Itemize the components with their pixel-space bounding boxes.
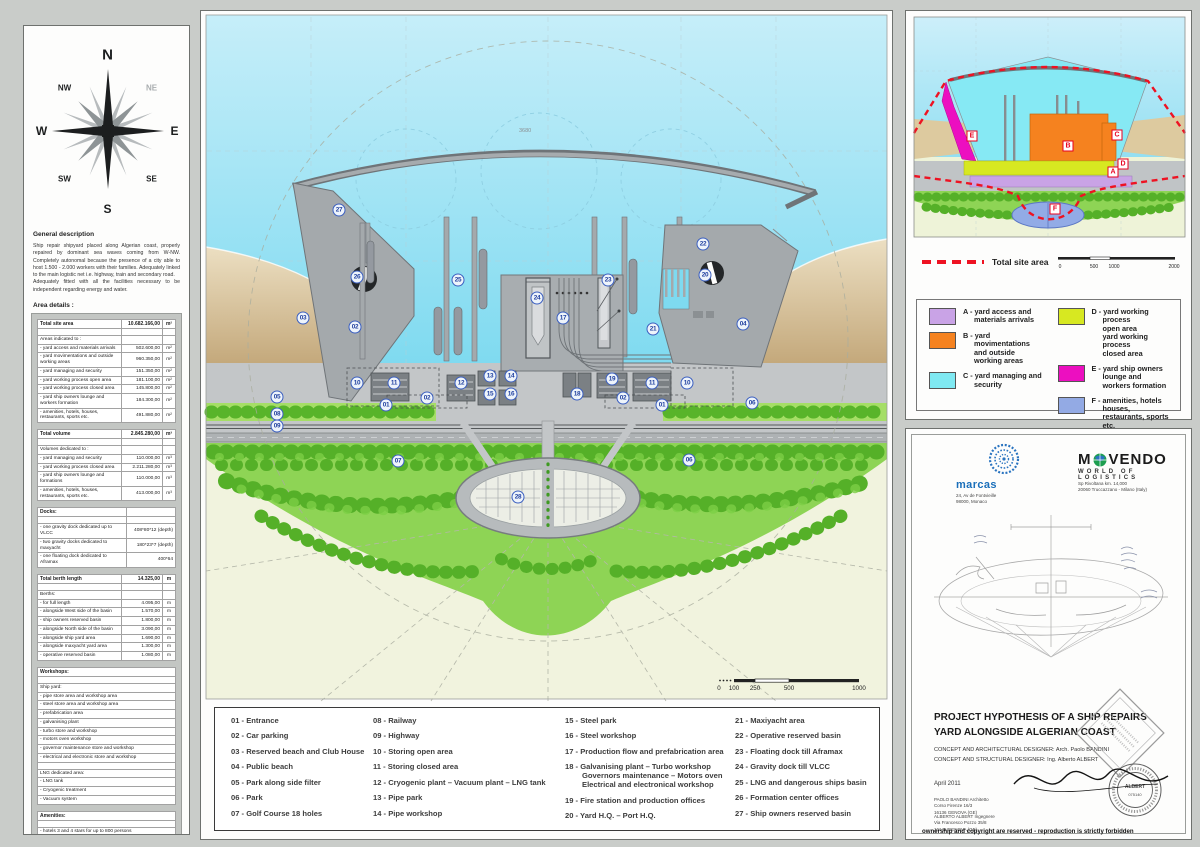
table-row: - alongside maxyacht yard area1.300,00m [38, 643, 176, 652]
table-row: - galvanising plant [38, 718, 176, 727]
legend-item: 08 - Railway [373, 717, 569, 726]
workshops-table: Workshops: Ship yard: - pipe store area … [37, 667, 176, 805]
compass-label-w: W [36, 124, 47, 138]
map-marker: 06 [683, 454, 696, 467]
table-intro: Areas indicated to : [38, 335, 122, 344]
table-row: - alongside ship yard area1.690,00m [38, 634, 176, 643]
table-row: - amenities, hotels, houses, restaurants… [38, 486, 176, 501]
table-row: - yard working process open area181.100,… [38, 376, 176, 385]
legend-item: 03 - Reserved beach and Club House [231, 748, 371, 757]
map-marker: 15 [484, 388, 497, 401]
map-marker: 01 [380, 399, 393, 412]
table-title: Total berth length [38, 574, 122, 583]
legend-item: 12 - Cryogenic plant – Vacuum plant – LN… [373, 779, 569, 788]
map-marker: 25 [452, 274, 465, 287]
legend-item: 27 - Ship owners reserved basin [735, 810, 877, 819]
zone-legend-item: D - yard working process open area yard … [1058, 308, 1175, 358]
map-marker: 16 [505, 388, 518, 401]
plan-legend: 01 - Entrance02 - Car parking03 - Reserv… [214, 707, 880, 831]
map-marker: 02 [421, 392, 434, 405]
table-unit: m³ [163, 430, 176, 439]
legend-item: 05 - Park along side filter [231, 779, 371, 788]
total-site-area-label: Total site area [992, 257, 1049, 267]
zone-b-shape [1030, 114, 1108, 161]
map-marker: 01 [656, 399, 669, 412]
general-description-text: Ship repair shipyard placed along Algeri… [33, 243, 180, 294]
table-total-value: 14.325,00 [122, 574, 163, 583]
zone-badge: C [1112, 130, 1123, 141]
general-description-title: General description [33, 231, 182, 238]
table-title: Total site area [38, 319, 122, 328]
map-marker: 23 [602, 274, 615, 287]
concept-sketch [916, 497, 1186, 667]
table-row: - yard movimentations and outside workin… [38, 353, 176, 368]
map-marker: 22 [697, 238, 710, 251]
signature [1006, 754, 1176, 800]
table-row: - alongside North side of the basin3.090… [38, 625, 176, 634]
compass-label-nw: NW [58, 84, 71, 93]
map-marker: 19 [606, 373, 619, 386]
zoning-overview-panel: ABCDEF Total site area 050010002000 [905, 10, 1192, 420]
legend-item: 01 - Entrance [231, 717, 371, 726]
table-row: - LNG tank [38, 778, 176, 787]
area-details-tables: Total site area10.682.166,00m² Areas ind… [31, 313, 182, 835]
movendo-subtitle: WORLD OF LOGISTICS [1078, 469, 1191, 481]
berths-table: Total berth length14.325,00m Berths: - f… [37, 574, 176, 661]
site-area-table: Total site area10.682.166,00m² Areas ind… [37, 319, 176, 423]
table-row: - prefabrication area [38, 710, 176, 719]
map-marker: 27 [333, 204, 346, 217]
table-row: - governor maintenance store and worksho… [38, 745, 176, 754]
legend-item: 16 - Steel workshop [565, 732, 737, 741]
zone-legend-item: E - yard ship owners lounge and workers … [1058, 365, 1175, 390]
docks-table: Docks: - one gravity dock dedicated up t… [37, 507, 176, 568]
table-row: - alongside West side of the basin1.570,… [38, 608, 176, 617]
table-total-value: 10.682.166,00 [122, 319, 163, 328]
map-marker: 11 [388, 377, 401, 390]
zone-legend-item: C - yard managing and security [929, 372, 1046, 389]
legend-item: 24 - Gravity dock till VLCC [735, 763, 877, 772]
movendo-globe-icon [1093, 453, 1107, 467]
zone-label: B - yard movimentations and outside work… [963, 332, 1046, 365]
zone-label: C - yard managing and security [963, 372, 1042, 389]
legend-item: 06 - Park [231, 794, 371, 803]
table-row: - hotels 3 and 4 stars for up to 800 per… [38, 827, 176, 835]
legend-item: 17 - Production flow and prefabrication … [565, 748, 737, 757]
zone-color-swatch [929, 308, 956, 325]
table-row: - one floating dock dedicated to Aframax… [38, 553, 176, 568]
table-row: - yard working process closed area2.211.… [38, 463, 176, 472]
table-row: - amenities, hotels, houses, restaurants… [38, 408, 176, 423]
scale-tick: 1000 [1108, 264, 1119, 270]
legend-item: 11 - Storing closed area [373, 763, 569, 772]
map-marker: 10 [351, 377, 364, 390]
compass-label-sw: SW [58, 175, 71, 184]
table-row: - electrical and electronic store and wo… [38, 753, 176, 762]
table-row: - one gravity dock dedicated up to VLCC4… [38, 524, 176, 539]
red-dash-sample [922, 259, 984, 265]
legend-item: 26 - Formation center offices [735, 794, 877, 803]
compass-label-s: S [103, 202, 111, 216]
table-row: - yard ship owners lounge and formations… [38, 472, 176, 487]
compass-label-e: E [170, 124, 178, 138]
legend-item: 23 - Floating dock till Aframax [735, 748, 877, 757]
zone-badge: E [967, 131, 978, 142]
compass-rose: N S E W NW NE SW SE [32, 33, 182, 225]
map-markers: 2726030225241723222021040508091011010212… [201, 11, 892, 703]
map-marker: 06 [746, 397, 759, 410]
table-unit: m² [163, 319, 176, 328]
table-title: Total volume [38, 430, 122, 439]
legend-item: 18 - Galvanising plant – Turbo workshop … [565, 763, 737, 790]
scale-tick: 0 [1059, 264, 1062, 270]
map-marker: 26 [351, 271, 364, 284]
zone-a-shape [970, 176, 1132, 187]
legend-item: 19 - Fire station and production offices [565, 797, 737, 806]
table-row: - Vacuum system [38, 795, 176, 804]
zone-legend-item: B - yard movimentations and outside work… [929, 332, 1046, 365]
zone-legend: A - yard access and materials arrivals B… [916, 299, 1181, 411]
map-marker: 04 [737, 318, 750, 331]
legend-item: 07 - Golf Course 18 holes [231, 810, 371, 819]
zone-label: A - yard access and materials arrivals [963, 308, 1034, 325]
table-row: - for full length4.095,00m [38, 599, 176, 608]
table-row: - yard managing and security110.000,00m³ [38, 454, 176, 463]
zone-legend-item: A - yard access and materials arrivals [929, 308, 1046, 325]
table-unit: m [163, 574, 176, 583]
legend-item: 04 - Public beach [231, 763, 371, 772]
legend-item: 14 - Pipe workshop [373, 810, 569, 819]
zone-color-swatch [929, 372, 956, 389]
mini-map-drawing [906, 11, 1193, 251]
zone-color-swatch [929, 332, 956, 349]
map-marker: 17 [557, 312, 570, 325]
table-row: - yard managing and security151.350,00m² [38, 367, 176, 376]
scale-tick: 2000 [1168, 264, 1179, 270]
zone-color-swatch [1058, 365, 1085, 382]
legend-item: 22 - Operative reserved basin [735, 732, 877, 741]
marcas-logo-icon [986, 441, 1022, 477]
copyright-notice: ownership and copyright are reserved - r… [922, 828, 1134, 835]
map-marker: 18 [571, 388, 584, 401]
compass-label-ne: NE [146, 84, 157, 93]
legend-item: 25 - LNG and dangerous ships basin [735, 779, 877, 788]
zone-color-swatch [1058, 397, 1085, 414]
zone-color-swatch [1058, 308, 1085, 325]
zone-badge: F [1050, 204, 1061, 215]
map-marker: 07 [392, 455, 405, 468]
table-row: - motors oven workshop [38, 736, 176, 745]
table-row: - yard working process closed area145.80… [38, 385, 176, 394]
left-info-panel: N S E W NW NE SW SE General description … [23, 25, 190, 835]
table-row: - ship owners reserved basin1.800,00m [38, 617, 176, 626]
map-marker: 12 [455, 377, 468, 390]
table-row: - two gravity docks dedicated to maxyach… [38, 538, 176, 553]
map-marker: 13 [484, 370, 497, 383]
legend-item: 10 - Storing open area [373, 748, 569, 757]
issue-date: April 2011 [934, 781, 961, 787]
total-site-area-key: Total site area [922, 257, 1049, 267]
title-block-panel: marcas 24, Av de Fontvieille 98000, Mona… [905, 428, 1192, 840]
sketch-notes [974, 536, 1157, 599]
legend-item: 02 - Car parking [231, 732, 371, 741]
volume-table: Total volume2.845.280,00m³ Volumes dedic… [37, 429, 176, 501]
site-plan-panel: 3680 01002505001000 27260302252417232220… [200, 10, 893, 840]
table-row: - steel store area and workshop area [38, 701, 176, 710]
drawing-sheet: N S E W NW NE SW SE General description … [0, 0, 1200, 847]
area-details-label: Area details : [33, 302, 182, 309]
table-row: - turbo store and workshop [38, 727, 176, 736]
map-marker: 03 [297, 312, 310, 325]
table-row: - operative reserved basin1.080,00m [38, 652, 176, 661]
table-row: - yard ship owners lounge and workers fo… [38, 394, 176, 409]
zoning-mini-map: ABCDEF [906, 11, 1193, 251]
table-title: Docks: [38, 508, 127, 517]
map-marker: 11 [646, 377, 659, 390]
movendo-logo-text: MVENDO [1078, 451, 1167, 468]
legend-item: 09 - Highway [373, 732, 569, 741]
zone-legend-item: F - amenities, hotels houses, restaurant… [1058, 397, 1175, 430]
table-total-value: 2.845.280,00 [122, 430, 163, 439]
legend-item: 15 - Steel park [565, 717, 737, 726]
marcas-logo-text: marcas [956, 479, 997, 491]
map-marker: 28 [512, 491, 525, 504]
overview-scale-bar: 050010002000 [1056, 255, 1182, 276]
zone-badge: D [1118, 159, 1129, 170]
table-subtitle: LNG dedicated area: [38, 769, 176, 778]
map-marker: 21 [647, 323, 660, 336]
map-marker: 09 [271, 420, 284, 433]
scale-tick: 500 [1090, 264, 1099, 270]
amenities-table: Amenities: - hotels 3 and 4 stars for up… [37, 811, 176, 835]
compass-label-n: N [102, 47, 113, 64]
movendo-m: M [1078, 451, 1092, 468]
zone-label: D - yard working process open area yard … [1092, 308, 1175, 358]
table-title: Amenities: [38, 811, 176, 820]
movendo-address: Sp Rivoltana km. 14,000 20060 Truccazzan… [1078, 481, 1147, 494]
table-intro: Berths: [38, 590, 122, 599]
legend-item: 21 - Maxiyacht area [735, 717, 877, 726]
map-marker: 10 [681, 377, 694, 390]
zone-badge: B [1063, 141, 1074, 152]
table-row: - pipe store area and workshop area [38, 692, 176, 701]
map-marker: 02 [617, 392, 630, 405]
table-row: - Cryogenic treatment [38, 787, 176, 796]
zone-label: E - yard ship owners lounge and workers … [1092, 365, 1167, 390]
map-marker: 24 [531, 292, 544, 305]
map-marker: 14 [505, 370, 518, 383]
map-marker: 20 [699, 269, 712, 282]
table-intro: Volumes dedicated to : [38, 446, 122, 455]
zone-label: F - amenities, hotels houses, restaurant… [1092, 397, 1169, 430]
table-row: - yard access and materials arrivals502.… [38, 344, 176, 353]
zone-d-shape [964, 161, 1114, 175]
compass-label-se: SE [146, 175, 157, 184]
legend-item: 13 - Pipe park [373, 794, 569, 803]
movendo-rest: VENDO [1109, 451, 1167, 468]
legend-item: 20 - Yard H.Q. – Port H.Q. [565, 812, 737, 821]
map-marker: 02 [349, 321, 362, 334]
table-title: Workshops: [38, 667, 176, 676]
map-marker: 05 [271, 391, 284, 404]
table-subtitle: Ship yard: [38, 683, 176, 692]
